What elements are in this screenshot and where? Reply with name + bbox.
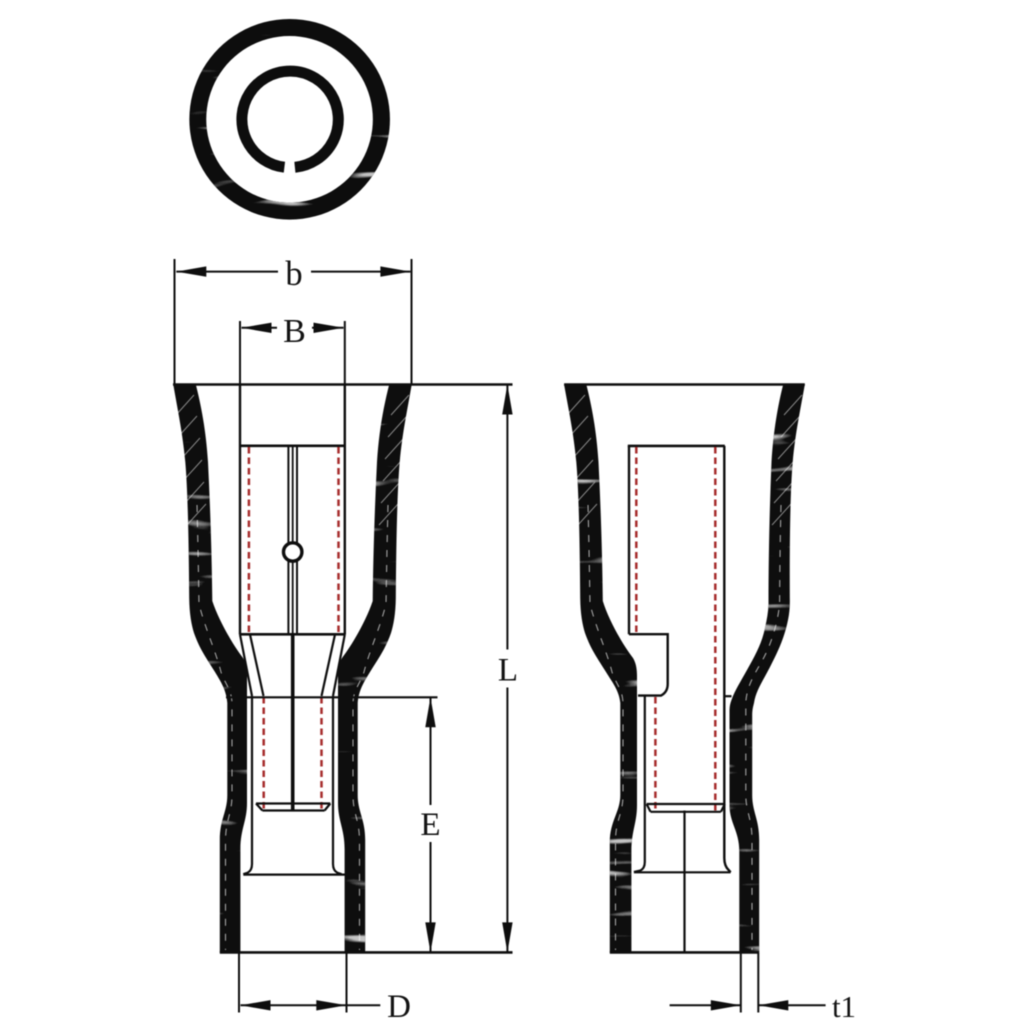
svg-text:E: E <box>420 807 440 843</box>
svg-text:D: D <box>387 989 411 1024</box>
svg-text:L: L <box>498 652 518 688</box>
svg-text:t1: t1 <box>832 989 856 1024</box>
svg-text:B: B <box>283 313 306 350</box>
svg-text:b: b <box>285 255 302 293</box>
